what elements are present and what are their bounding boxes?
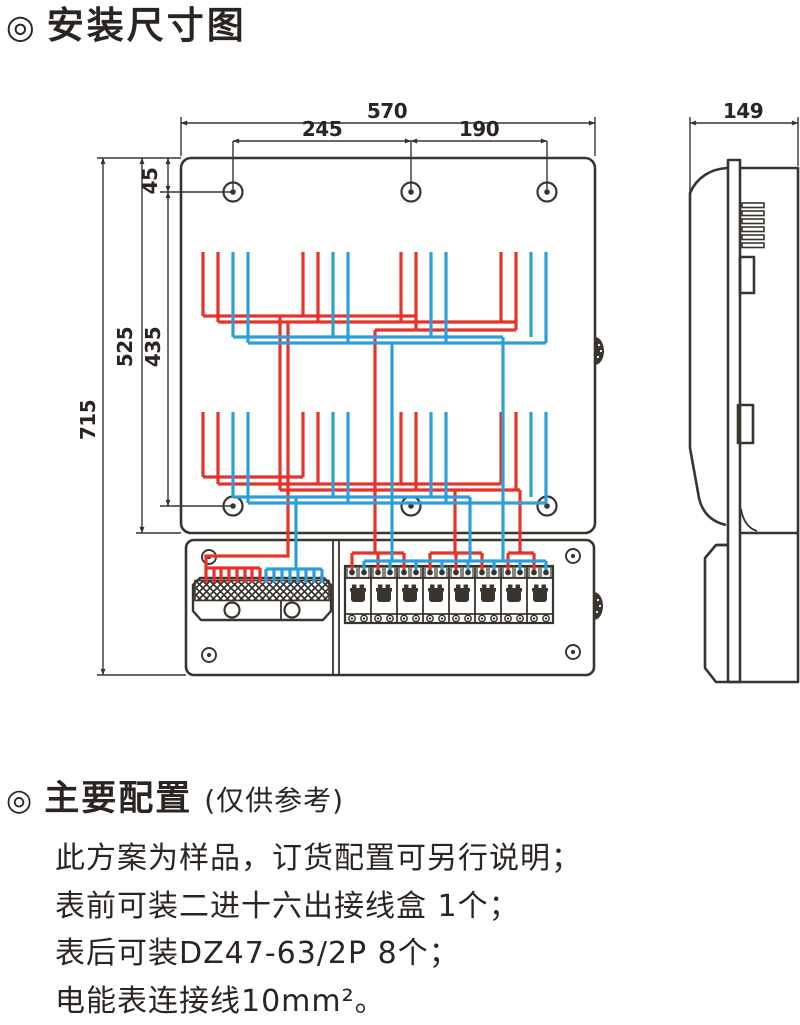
config-lines: 此方案为样品，订货配置可另行说明； 表前可装二进十六出接线盒 1个； 表后可装D…: [55, 835, 786, 1025]
config-line: 此方案为样品，订货配置可另行说明；: [55, 835, 786, 883]
dim-panel-height: 525: [113, 327, 137, 367]
cover-profile: [690, 168, 727, 525]
louver-vents: [742, 203, 764, 248]
side-clip-upper: [740, 257, 754, 293]
dim-overall-width: 570: [367, 99, 407, 123]
dim-top-offset: 45: [138, 168, 162, 195]
side-view: 149: [690, 99, 798, 682]
config-heading-note: (仅供参考): [204, 779, 344, 819]
knob-upper: [595, 337, 604, 365]
section-bullet-icon: ◎: [6, 786, 32, 816]
terminal-block: [193, 578, 331, 620]
dim-hole-span-left: 245: [302, 117, 342, 141]
config-section: ◎ 主要配置 (仅供参考) 此方案为样品，订货配置可另行说明； 表前可装二进十六…: [6, 770, 786, 1025]
mounting-holes: [224, 183, 557, 516]
dim-depth: 149: [723, 99, 763, 123]
dim-hole-span-vertical: 435: [141, 327, 165, 367]
config-heading: 主要配置: [44, 770, 192, 821]
config-line: 表后可装DZ47-63/2P 8个；: [55, 930, 786, 978]
config-heading-row: ◎ 主要配置 (仅供参考): [6, 770, 786, 821]
terminal-port-right: [285, 603, 300, 618]
front-view: 570 245 190 715 525 435 45: [76, 99, 604, 675]
config-line: 表前可装二进十六出接线盒 1个；: [55, 883, 786, 931]
side-dimensions: 149: [690, 99, 798, 192]
dim-hole-span-right: 190: [459, 117, 499, 141]
terminal-hatch-band: [195, 581, 329, 601]
terminal-port-left: [225, 603, 240, 618]
config-line: 电能表连接线10mm²。: [55, 978, 786, 1025]
dim-total-height: 715: [76, 400, 100, 440]
knob-lower: [594, 592, 603, 620]
installation-drawing: 570 245 190 715 525 435 45: [0, 0, 800, 760]
